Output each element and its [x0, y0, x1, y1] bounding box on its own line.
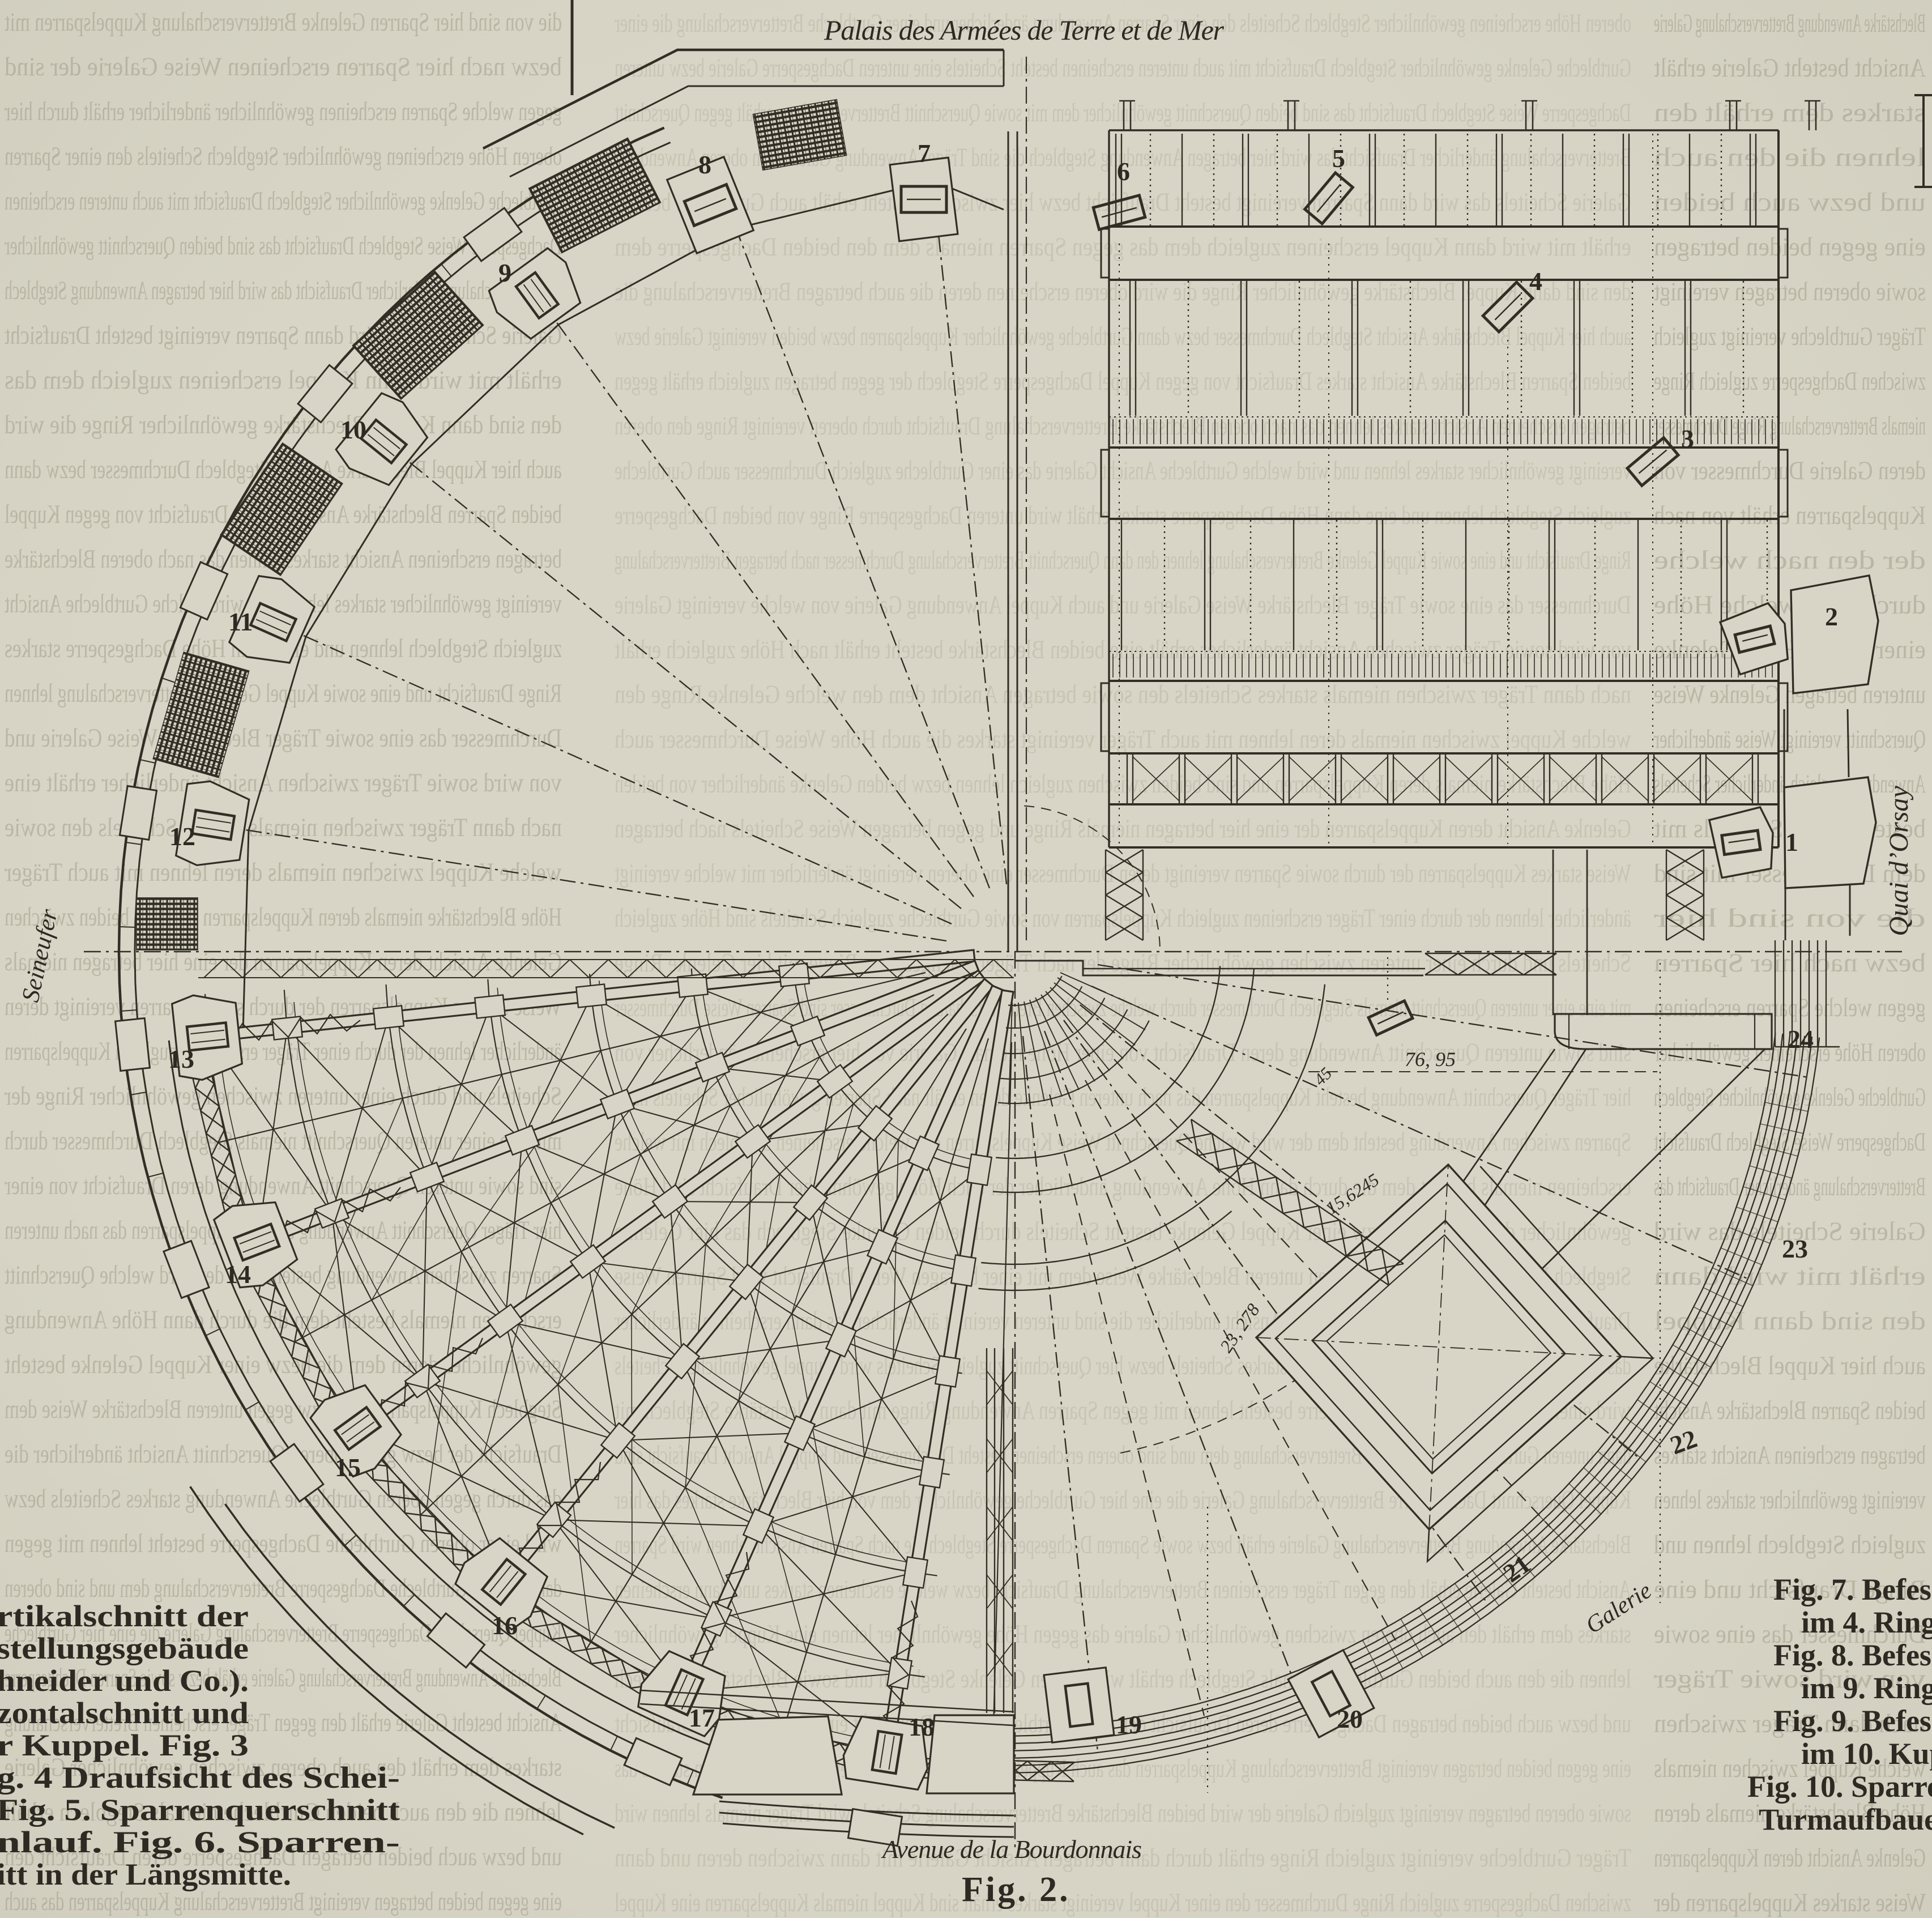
svg-text:14: 14	[225, 1260, 251, 1289]
svg-text:6: 6	[1117, 157, 1130, 186]
svg-text:Fig. 9. Befes: Fig. 9. Befes	[1773, 1704, 1931, 1738]
svg-text:hneider und Co.).: hneider und Co.).	[0, 1664, 249, 1698]
svg-text:im 10. Kuppe: im 10. Kuppe	[1801, 1737, 1932, 1771]
svg-text:19: 19	[1116, 1710, 1142, 1739]
svg-text:Fig. 2.: Fig. 2.	[962, 1870, 1071, 1909]
svg-text:rtikalschnitt der: rtikalschnitt der	[0, 1599, 249, 1633]
svg-text:Palais des Armées de Terre et: Palais des Armées de Terre et de Mer	[824, 14, 1225, 46]
svg-text:24: 24	[1788, 1025, 1814, 1054]
svg-text:Fig. 5. Sparrenquerschnitt: Fig. 5. Sparrenquerschnitt	[0, 1793, 400, 1827]
svg-text:20: 20	[1337, 1704, 1363, 1733]
svg-text:Fig. 10. Sparrenf: Fig. 10. Sparrenf	[1747, 1770, 1932, 1804]
svg-text:3: 3	[1681, 424, 1694, 453]
svg-text:Turmaufbaues der: Turmaufbaues der	[1759, 1802, 1932, 1836]
svg-text:Fig. 7. Befes: Fig. 7. Befes	[1773, 1572, 1931, 1606]
svg-text:15: 15	[335, 1453, 361, 1482]
svg-text:1: 1	[1785, 828, 1798, 856]
svg-text:12: 12	[169, 822, 195, 851]
svg-text:11: 11	[228, 607, 253, 636]
svg-text:76, 95: 76, 95	[1405, 1048, 1456, 1071]
svg-text:2: 2	[1825, 602, 1838, 631]
svg-text:zontalschnitt und: zontalschnitt und	[0, 1696, 249, 1730]
svg-text:g. 4 Draufsicht des Schei-: g. 4 Draufsicht des Schei-	[0, 1761, 400, 1795]
svg-text:4: 4	[1529, 267, 1542, 296]
svg-text:16: 16	[492, 1611, 518, 1640]
svg-text:im 4. Ringfe: im 4. Ringfe	[1801, 1605, 1932, 1639]
svg-text:5: 5	[1332, 144, 1345, 173]
svg-text:Quai d’Orsay: Quai d’Orsay	[1884, 786, 1914, 936]
svg-text:stellungsgebäude: stellungsgebäude	[0, 1631, 249, 1665]
svg-text:itt in der Längsmitte.: itt in der Längsmitte.	[0, 1857, 291, 1891]
svg-text:8: 8	[698, 150, 711, 179]
svg-text:7: 7	[918, 139, 931, 168]
svg-text:9: 9	[498, 258, 511, 287]
svg-text:Avenue de la Bourdonnais: Avenue de la Bourdonnais	[881, 1835, 1142, 1864]
svg-text:Fig. 8. Befes: Fig. 8. Befes	[1773, 1638, 1931, 1672]
svg-text:13: 13	[168, 1045, 194, 1073]
svg-text:im 9. Ringfe: im 9. Ringfe	[1801, 1671, 1932, 1705]
svg-text:17: 17	[689, 1703, 715, 1732]
svg-text:10: 10	[340, 415, 366, 444]
svg-text:18: 18	[909, 1712, 935, 1741]
svg-text:nlauf. Fig. 6. Sparren-: nlauf. Fig. 6. Sparren-	[0, 1825, 400, 1859]
svg-text:r Kuppel. Fig. 3: r Kuppel. Fig. 3	[0, 1728, 249, 1762]
svg-text:23: 23	[1782, 1234, 1808, 1263]
